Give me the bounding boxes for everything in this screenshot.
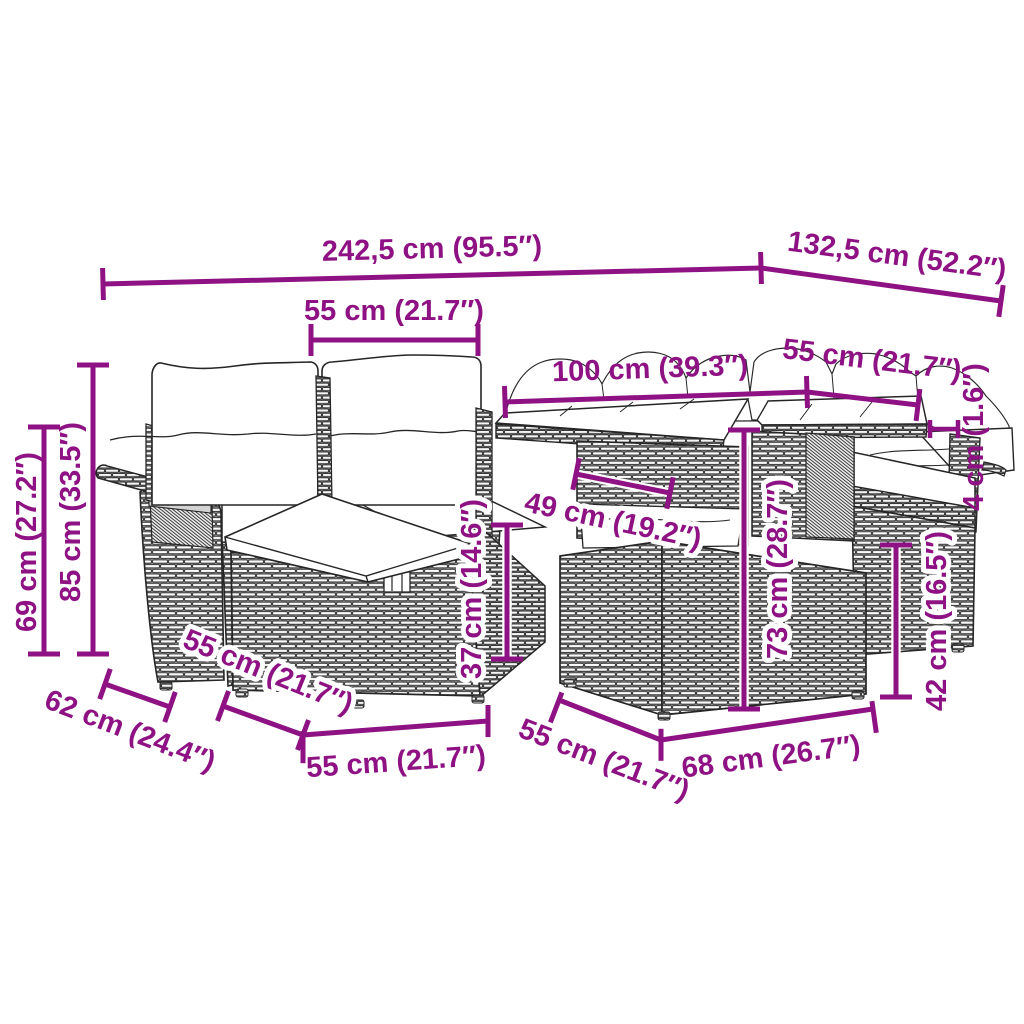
svg-text:4 cm (1.6″): 4 cm (1.6″) [958,363,990,511]
svg-text:42 cm (16.5″): 42 cm (16.5″) [921,531,953,711]
svg-text:242,5 cm (95.5″): 242,5 cm (95.5″) [321,230,542,268]
svg-text:55 cm (21.7″): 55 cm (21.7″) [304,295,484,327]
svg-text:100 cm (39.3″): 100 cm (39.3″) [551,350,748,389]
svg-text:73 cm (28.7″): 73 cm (28.7″) [762,479,794,659]
svg-text:69 cm (27.2″): 69 cm (27.2″) [11,452,43,632]
svg-text:37 cm (14.6″): 37 cm (14.6″) [456,499,488,679]
svg-text:85 cm (33.5″): 85 cm (33.5″) [55,422,87,602]
